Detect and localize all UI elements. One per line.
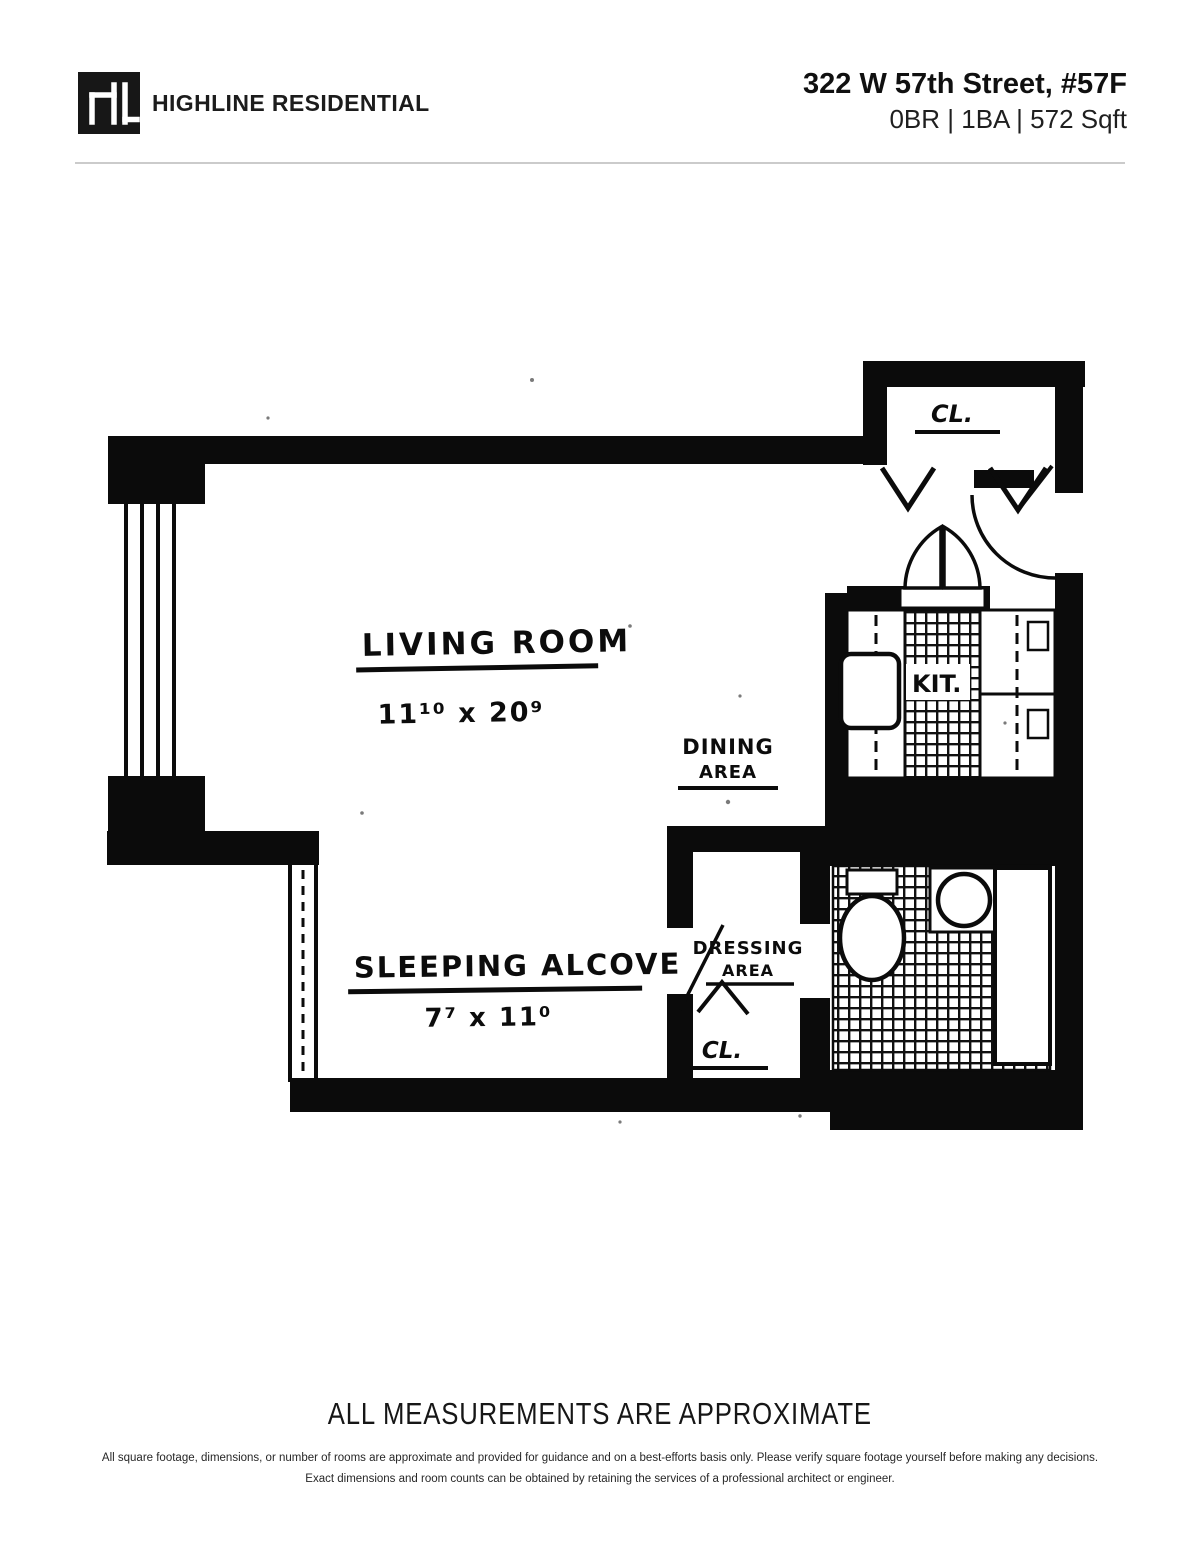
kitchen-appliance: [841, 654, 899, 728]
closet-bottom-label: CL.: [702, 1038, 742, 1064]
toilet-bowl: [840, 896, 904, 980]
sink-basin: [938, 874, 990, 926]
closet-top-label: CL.: [931, 400, 973, 428]
listing-address: 322 W 57th Street, #57F: [803, 68, 1127, 101]
dressing-area-label-2: AREA: [722, 961, 774, 980]
kitchen-bifold-right: [944, 527, 980, 588]
toilet-tank: [847, 870, 897, 894]
kitchen-bifold-left: [905, 527, 941, 588]
listing-specs: 0BR | 1BA | 572 Sqft: [803, 104, 1127, 135]
dining-area-label-2: AREA: [699, 762, 757, 783]
kitchen-label: KIT.: [912, 670, 961, 698]
dining-area-label-1: DINING: [682, 735, 773, 759]
measurements-note-text: ALL MEASUREMENTS ARE APPROXIMATE: [328, 1396, 872, 1432]
sleeping-alcove-dims: 7⁷ x 11⁰: [424, 1002, 552, 1034]
listing-header: 322 W 57th Street, #57F 0BR | 1BA | 572 …: [803, 68, 1127, 135]
closet-bottom-door: [698, 982, 748, 1014]
window-left: [126, 504, 174, 776]
bathtub: [995, 868, 1050, 1064]
header-divider: [75, 162, 1125, 164]
dressing-area-label-1: DRESSING: [693, 938, 804, 959]
alcove-left-wall: [290, 863, 316, 1080]
floorplan-page: HIGHLINE RESIDENTIAL 322 W 57th Street, …: [0, 0, 1200, 1552]
floorplan-drawing: CL. LIVING ROOM 11¹⁰ x 20⁹ DINING AREA K…: [100, 358, 1090, 1145]
highline-logo-icon: [78, 72, 140, 134]
kitchen-area: [841, 527, 1055, 778]
sleeping-alcove-label: SLEEPING ALCOVE: [354, 947, 682, 985]
bathroom-area: [833, 866, 1050, 1070]
hl-monogram-icon: [78, 72, 140, 134]
brand-name: HIGHLINE RESIDENTIAL: [152, 72, 430, 134]
kitchen-door-sill: [900, 588, 985, 608]
living-room-dims: 11¹⁰ x 20⁹: [377, 697, 544, 731]
disclaimer-text: All square footage, dimensions, or numbe…: [95, 1448, 1105, 1489]
living-room-label: LIVING ROOM: [361, 623, 631, 664]
measurements-note: ALL MEASUREMENTS ARE APPROXIMATE: [0, 1396, 1200, 1432]
